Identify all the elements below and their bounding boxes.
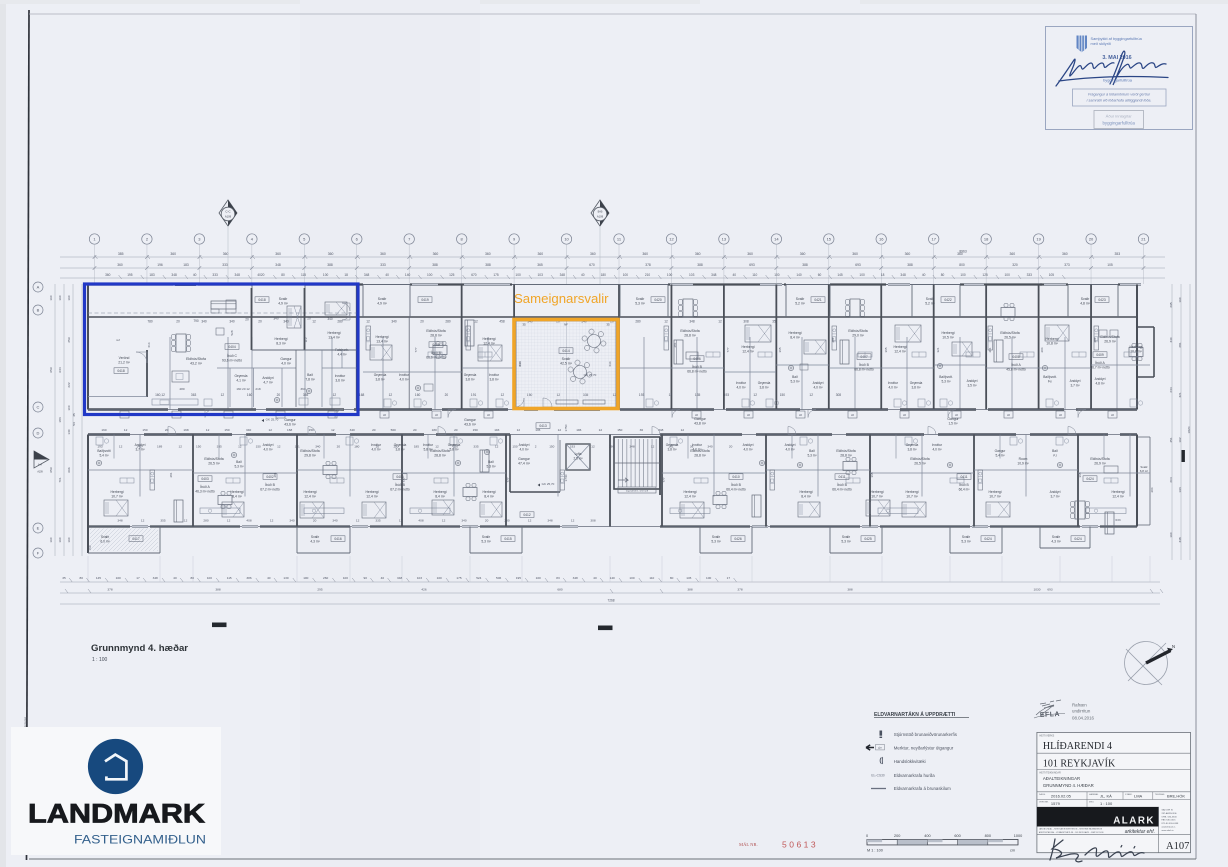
- svg-text:12: 12: [184, 519, 188, 523]
- svg-text:335: 335: [473, 445, 478, 449]
- svg-text:180: 180: [601, 273, 607, 277]
- svg-text:378: 378: [107, 588, 112, 592]
- svg-text:0413: 0413: [539, 424, 547, 428]
- svg-text:193: 193: [570, 445, 575, 449]
- svg-text:3,8 m²: 3,8 m²: [395, 448, 404, 452]
- svg-text:0425: 0425: [864, 537, 872, 541]
- svg-text:Herbergi: Herbergi: [893, 345, 906, 349]
- svg-text:348: 348: [275, 263, 281, 267]
- svg-text:5,3 m²: 5,3 m²: [481, 540, 491, 544]
- svg-text:8,4 m²: 8,4 m²: [790, 336, 800, 340]
- svg-text:EI₂-CS30: EI₂-CS30: [871, 774, 885, 778]
- svg-text:0424: 0424: [1074, 537, 1082, 541]
- svg-text:LR: LR: [799, 414, 802, 417]
- svg-text:20: 20: [245, 318, 249, 322]
- svg-text:3,5 m²: 3,5 m²: [967, 384, 976, 388]
- svg-text:388: 388: [485, 263, 491, 267]
- svg-text:5,3 m²: 5,3 m²: [790, 380, 799, 384]
- svg-text:42,5 m²: 42,5 m²: [560, 362, 573, 366]
- svg-text:360: 360: [433, 252, 439, 256]
- svg-text:4,1 m²: 4,1 m²: [236, 379, 246, 383]
- svg-text:560: 560: [391, 428, 396, 432]
- svg-text:193: 193: [639, 393, 645, 397]
- svg-text:800: 800: [959, 263, 965, 267]
- svg-text:C: C: [37, 405, 40, 410]
- svg-text:FAX 530-5515: FAX 530-5515: [1162, 819, 1177, 822]
- svg-text:byggingarfulltrúa: byggingarfulltrúa: [1103, 78, 1133, 83]
- svg-text:Bað: Bað: [307, 372, 313, 377]
- svg-text:360: 360: [328, 252, 334, 256]
- svg-text:5,3 m²: 5,3 m²: [486, 465, 495, 469]
- svg-text:12,4 m²: 12,4 m²: [366, 495, 378, 499]
- svg-text:GRUNNMYND 4. HÆÐAR: GRUNNMYND 4. HÆÐAR: [1043, 783, 1094, 788]
- svg-text:35: 35: [62, 576, 66, 580]
- svg-text:4,7 m²: 4,7 m²: [263, 381, 273, 385]
- svg-text:5,3 m²: 5,3 m²: [941, 380, 950, 384]
- svg-text:Gangur: Gangur: [518, 457, 531, 461]
- svg-text:5,3 m²: 5,3 m²: [635, 302, 645, 306]
- svg-text:12: 12: [277, 445, 281, 449]
- svg-text:20: 20: [258, 320, 262, 324]
- svg-text:701: 701: [58, 477, 62, 482]
- svg-text:8,4 m²: 8,4 m²: [232, 495, 242, 499]
- svg-text:LMA: LMA: [1134, 793, 1143, 798]
- svg-text:Herbergi: Herbergi: [741, 345, 754, 349]
- svg-text:A109: A109: [225, 214, 232, 218]
- svg-text:ALARK: ALARK: [1113, 816, 1155, 827]
- svg-text:JL, KÁ: JL, KÁ: [1100, 793, 1112, 798]
- svg-text:Svalir: Svalir: [311, 535, 320, 539]
- svg-text:3,6 m²: 3,6 m²: [335, 379, 345, 383]
- svg-text:STAÐF.: STAÐF.: [1125, 793, 1133, 796]
- svg-text:130: 130: [67, 429, 71, 434]
- svg-text:26,9 m²: 26,9 m²: [1104, 340, 1116, 344]
- svg-text:160: 160: [67, 537, 71, 542]
- svg-text:100: 100: [437, 576, 442, 580]
- svg-text:281: 281: [673, 342, 677, 347]
- svg-text:Herbergi: Herbergi: [1045, 337, 1058, 341]
- svg-text:12,4 m²: 12,4 m²: [742, 350, 754, 354]
- svg-text:N: N: [1172, 644, 1175, 649]
- svg-text:Eldhús/Stofa: Eldhús/Stofa: [430, 449, 449, 453]
- svg-text:0400: 0400: [396, 475, 404, 479]
- svg-text:Herbergi: Herbergi: [375, 335, 388, 339]
- svg-text:100: 100: [859, 273, 865, 277]
- svg-text:333: 333: [222, 263, 228, 267]
- svg-text:348: 348: [573, 576, 578, 580]
- svg-text:348: 348: [235, 273, 241, 277]
- svg-text:0417: 0417: [132, 537, 140, 541]
- svg-text:0409: 0409: [1096, 353, 1104, 357]
- svg-text:17: 17: [931, 237, 936, 242]
- svg-text:365: 365: [1078, 472, 1082, 477]
- svg-text:Anddyri: Anddyri: [743, 443, 754, 447]
- svg-text:386: 386: [246, 576, 251, 580]
- svg-text:191: 191: [471, 393, 477, 397]
- svg-text:12: 12: [270, 519, 274, 523]
- svg-text:340: 340: [289, 519, 294, 523]
- svg-text:LR: LR: [747, 414, 750, 417]
- svg-text:145: 145: [686, 576, 691, 580]
- svg-text:Geymsla: Geymsla: [448, 443, 461, 447]
- svg-text:135: 135: [695, 393, 701, 397]
- svg-text:B-B: B-B: [598, 210, 603, 214]
- svg-text:Íbúð B: Íbúð B: [265, 482, 276, 487]
- svg-text:373: 373: [1064, 263, 1070, 267]
- svg-text:Geymsla: Geymsla: [910, 381, 923, 385]
- svg-text:4,0 m²: 4,0 m²: [888, 386, 897, 390]
- svg-text:12: 12: [474, 320, 478, 324]
- svg-text:12: 12: [599, 428, 603, 432]
- svg-text:353: 353: [1114, 252, 1120, 256]
- svg-text:780: 780: [147, 320, 153, 324]
- svg-text:80: 80: [670, 576, 674, 580]
- svg-text:140: 140: [405, 273, 411, 277]
- svg-text:26,5 m²: 26,5 m²: [208, 462, 220, 466]
- svg-text:12: 12: [119, 445, 123, 449]
- svg-text:Þv.: Þv.: [1048, 380, 1052, 384]
- svg-text:1750: 1750: [564, 424, 568, 431]
- svg-text:4,0 m²: 4,0 m²: [263, 448, 272, 452]
- svg-text:LR: LR: [903, 414, 906, 417]
- svg-text:HLÍÐARENDI 4: HLÍÐARENDI 4: [1043, 740, 1112, 752]
- svg-text:130: 130: [283, 576, 288, 580]
- svg-text:AÐALTEIKNINGAR: AÐALTEIKNINGAR: [1043, 776, 1080, 781]
- svg-text:360: 360: [905, 252, 911, 256]
- svg-text:100: 100: [515, 273, 521, 277]
- svg-text:50613: 50613: [782, 840, 818, 850]
- svg-text:BRE,HÖK: BRE,HÖK: [1167, 793, 1185, 798]
- svg-text:150: 150: [256, 445, 261, 449]
- svg-text:524: 524: [476, 576, 481, 580]
- svg-text:0424: 0424: [984, 537, 992, 541]
- svg-text:185: 185: [414, 445, 419, 449]
- svg-text:15: 15: [827, 237, 832, 242]
- svg-text:B: B: [37, 308, 40, 313]
- svg-text:168: 168: [183, 428, 188, 432]
- svg-text:12,4 m²: 12,4 m²: [1112, 495, 1124, 499]
- svg-text:175: 175: [456, 576, 461, 580]
- svg-text:12: 12: [178, 445, 182, 449]
- svg-text:100: 100: [536, 576, 541, 580]
- svg-text:Geymsla: Geymsla: [374, 373, 387, 377]
- svg-text:4,0 m²: 4,0 m²: [743, 448, 752, 452]
- svg-text:12: 12: [718, 320, 722, 324]
- svg-text:TEIKNAÐ: TEIKNAÐ: [1155, 793, 1165, 796]
- svg-text:66,4 m²: 66,4 m²: [959, 488, 970, 492]
- svg-text:168: 168: [359, 393, 365, 397]
- svg-text:Bað: Bað: [809, 448, 815, 453]
- svg-text:12: 12: [141, 519, 145, 523]
- svg-text:0420: 0420: [654, 298, 662, 302]
- svg-text:0411: 0411: [838, 475, 845, 479]
- svg-text:ELDVARNARTÁKN Á UPPDRÆTTI: ELDVARNARTÁKN Á UPPDRÆTTI: [874, 711, 956, 718]
- svg-text:218: 218: [255, 387, 260, 391]
- svg-text:790: 790: [193, 319, 199, 323]
- svg-text:360: 360: [747, 252, 753, 256]
- svg-text:659: 659: [49, 367, 53, 372]
- svg-text:105: 105: [1107, 263, 1113, 267]
- svg-text:3,8 m²: 3,8 m²: [465, 378, 474, 382]
- svg-text:115: 115: [301, 273, 306, 277]
- svg-text:arkitektar ehf.: arkitektar ehf.: [1125, 829, 1155, 835]
- svg-text:12: 12: [399, 519, 403, 523]
- svg-text:10,8 m²: 10,8 m²: [1130, 350, 1142, 354]
- svg-text:VERKNR.: VERKNR.: [1039, 801, 1049, 803]
- svg-text:3,8 m²: 3,8 m²: [375, 378, 384, 382]
- svg-text:20: 20: [1089, 237, 1094, 242]
- svg-text:0421: 0421: [814, 298, 822, 302]
- svg-text:43,6 m²: 43,6 m²: [464, 423, 477, 427]
- svg-text:GK 25,70: GK 25,70: [266, 418, 279, 422]
- svg-text:Bað: Bað: [792, 374, 798, 379]
- svg-text:388: 388: [697, 263, 703, 267]
- svg-text:321: 321: [1178, 392, 1182, 397]
- svg-text:5,3 m²: 5,3 m²: [234, 465, 243, 469]
- svg-text:0423: 0423: [1098, 298, 1106, 302]
- svg-text:40: 40: [593, 576, 597, 580]
- svg-text:Eldvarnarkrafa á brunaskilum: Eldvarnarkrafa á brunaskilum: [894, 786, 951, 791]
- svg-text:340: 340: [332, 519, 337, 523]
- svg-text:4,0 m²: 4,0 m²: [736, 386, 745, 390]
- svg-text:3,8 m²: 3,8 m²: [907, 448, 916, 452]
- svg-text:20: 20: [454, 428, 458, 432]
- svg-text:Íbúð B: Íbúð B: [731, 482, 742, 487]
- svg-text:222: 222: [67, 382, 71, 387]
- svg-text:Íbúð C: Íbúð C: [227, 353, 238, 358]
- svg-text:10,8 m²: 10,8 m²: [1046, 342, 1058, 346]
- svg-text:160: 160: [1178, 297, 1182, 302]
- svg-text:365: 365: [537, 263, 543, 267]
- svg-text:28,8 m²: 28,8 m²: [430, 334, 442, 338]
- svg-text:365: 365: [778, 347, 782, 352]
- svg-text:103: 103: [689, 273, 695, 277]
- svg-text:Anddyri: Anddyri: [263, 443, 274, 447]
- svg-text:Þvottur: Þvottur: [335, 374, 346, 378]
- svg-text:280: 280: [203, 519, 208, 523]
- svg-text:160: 160: [58, 537, 62, 542]
- svg-text:348: 348: [689, 320, 695, 324]
- svg-text:Herbergi: Herbergi: [274, 337, 287, 341]
- svg-text:Svalir: Svalir: [636, 297, 645, 301]
- svg-text:M 1 : 100: M 1 : 100: [867, 849, 883, 853]
- svg-text:LR: LR: [1007, 414, 1010, 417]
- svg-text:600: 600: [954, 834, 960, 838]
- svg-text:3,7 m²: 3,7 m²: [1050, 495, 1059, 499]
- svg-text:180: 180: [432, 428, 437, 432]
- svg-text:160: 160: [67, 295, 71, 300]
- svg-text:LR: LR: [1059, 414, 1062, 417]
- svg-text:4,0 m²: 4,0 m²: [813, 386, 822, 390]
- svg-text:348: 348: [711, 273, 717, 277]
- svg-text:348: 348: [117, 519, 122, 523]
- svg-text:JAKOB LÍNDAL – KRISTJÁN EGGERT: JAKOB LÍNDAL – KRISTJÁN EGGERTSSON – KRI…: [1039, 828, 1103, 831]
- svg-text:12: 12: [517, 428, 521, 432]
- svg-text:100: 100: [1005, 273, 1011, 277]
- svg-text:Íbúð B: Íbúð B: [959, 482, 969, 487]
- svg-text:4,0 m²: 4,0 m²: [519, 448, 528, 452]
- svg-text:Herbergi: Herbergi: [905, 490, 918, 494]
- svg-text:ref: ref: [116, 338, 119, 342]
- svg-text:byggingarfulltrúa: byggingarfulltrúa: [1102, 121, 1135, 126]
- svg-text:4,8 m²: 4,8 m²: [1080, 302, 1090, 306]
- svg-text:320: 320: [1012, 263, 1018, 267]
- svg-text:388: 388: [687, 588, 692, 592]
- svg-text:659: 659: [49, 467, 53, 472]
- svg-text:348: 348: [900, 273, 906, 277]
- svg-text:360: 360: [852, 252, 858, 256]
- svg-text:HEITI VERKS: HEITI VERKS: [1039, 734, 1054, 737]
- svg-text:5,3 m²: 5,3 m²: [711, 540, 721, 544]
- svg-text:Þvottur: Þvottur: [371, 443, 382, 447]
- svg-text:67,2 m² nettó: 67,2 m² nettó: [260, 488, 280, 492]
- svg-text:Herbergi: Herbergi: [1111, 490, 1124, 494]
- svg-text:10,7 m²: 10,7 m²: [871, 495, 883, 499]
- svg-text:0416: 0416: [334, 537, 342, 541]
- svg-text:2,5 m²: 2,5 m²: [573, 457, 582, 461]
- svg-text:4,3 m²: 4,3 m²: [310, 540, 320, 544]
- svg-text:6,8 m²: 6,8 m²: [1140, 469, 1148, 473]
- svg-text:1 : 100: 1 : 100: [1100, 801, 1113, 806]
- svg-text:20: 20: [372, 428, 376, 432]
- svg-text:348: 348: [397, 576, 402, 580]
- svg-text:LANDMARK: LANDMARK: [28, 799, 206, 829]
- svg-text:ORB. 530-5500: ORB. 530-5500: [1162, 816, 1178, 818]
- svg-text:0422: 0422: [944, 298, 952, 302]
- svg-text:100: 100: [774, 273, 780, 277]
- svg-text:40: 40: [381, 576, 385, 580]
- svg-text:20: 20: [277, 393, 281, 397]
- svg-text:undirritun: undirritun: [1072, 709, 1091, 714]
- svg-text:365: 365: [884, 347, 888, 352]
- svg-text:1579: 1579: [1051, 801, 1061, 806]
- svg-text:Þvottur: Þvottur: [423, 443, 434, 447]
- svg-text:348: 348: [560, 273, 566, 277]
- svg-text:20: 20: [420, 320, 424, 324]
- svg-text:26,5 m²: 26,5 m²: [914, 462, 926, 466]
- svg-text:348: 348: [171, 273, 177, 277]
- svg-text:348: 348: [1178, 537, 1182, 542]
- svg-text:Anddyri: Anddyri: [1070, 379, 1081, 383]
- svg-text:0410: 0410: [732, 475, 740, 479]
- svg-text:360: 360: [1010, 252, 1016, 256]
- svg-text:458: 458: [499, 320, 505, 324]
- svg-text:Íbúð A: Íbúð A: [1095, 360, 1105, 365]
- svg-text:360: 360: [170, 252, 176, 256]
- svg-text:66,4 m² nettó: 66,4 m² nettó: [832, 488, 852, 492]
- svg-text:4020: 4020: [257, 273, 264, 277]
- svg-text:280: 280: [445, 320, 451, 324]
- svg-text:Herbergi: Herbergi: [870, 490, 883, 494]
- svg-text:17: 17: [136, 576, 140, 580]
- svg-text:145: 145: [96, 576, 101, 580]
- svg-text:8,4 m²: 8,4 m²: [484, 495, 494, 499]
- svg-text:7,8 m²: 7,8 m²: [305, 378, 315, 382]
- svg-text:66,8 m² nettó: 66,8 m² nettó: [854, 368, 874, 372]
- svg-text:Anddyri: Anddyri: [785, 443, 796, 447]
- svg-text:35: 35: [772, 320, 776, 324]
- svg-text:MKV.: MKV.: [1089, 801, 1095, 803]
- svg-text:12: 12: [356, 519, 360, 523]
- svg-text:634: 634: [58, 367, 62, 372]
- svg-text:10,9 m²: 10,9 m²: [1017, 462, 1029, 466]
- svg-text:Herbergi: Herbergi: [327, 331, 340, 335]
- svg-text:í samráði við lóðarhafa aðligg: í samráði við lóðarhafa aðliggjandi lóða…: [1087, 99, 1152, 103]
- svg-text:634: 634: [518, 361, 522, 366]
- svg-text:287-ARPHOFÐ: 287-ARPHOFÐ: [1162, 812, 1177, 815]
- svg-text:46,3 m² nettó: 46,3 m² nettó: [195, 490, 215, 494]
- svg-text:12: 12: [651, 445, 655, 449]
- svg-text:175: 175: [493, 273, 499, 277]
- svg-text:135: 135: [535, 428, 540, 432]
- svg-text:Íbúð B: Íbúð B: [859, 362, 870, 367]
- svg-text:80: 80: [281, 273, 285, 277]
- svg-text:Herbergi: Herbergi: [788, 331, 801, 335]
- svg-text:340: 340: [707, 445, 712, 449]
- svg-text:125: 125: [449, 273, 455, 277]
- svg-text:150: 150: [512, 445, 517, 449]
- svg-text:666: 666: [67, 467, 71, 472]
- svg-text:5,2 m²: 5,2 m²: [925, 302, 935, 306]
- svg-text:Herbergi: Herbergi: [988, 490, 1001, 494]
- svg-text:355: 355: [303, 393, 309, 397]
- svg-text:6,0 m²: 6,0 m²: [100, 540, 110, 544]
- svg-text:Svalir: Svalir: [482, 535, 491, 539]
- svg-text:196: 196: [157, 263, 163, 267]
- svg-text:195: 195: [516, 576, 521, 580]
- svg-text:183: 183: [58, 417, 62, 422]
- svg-text:140: 140: [610, 576, 615, 580]
- svg-text:150: 150: [142, 428, 147, 432]
- svg-text:NF: NF: [564, 323, 568, 327]
- svg-text:100: 100: [207, 576, 212, 580]
- svg-text:10: 10: [564, 237, 569, 242]
- svg-text:101 REYKJAVÍK: 101 REYKJAVÍK: [1043, 758, 1116, 770]
- svg-text:12: 12: [221, 393, 225, 397]
- svg-text:100: 100: [623, 273, 629, 277]
- svg-text:4,0 m²: 4,0 m²: [371, 448, 380, 452]
- svg-text:348: 348: [547, 519, 552, 523]
- svg-text:160: 160: [1169, 532, 1173, 537]
- svg-text:680: 680: [557, 588, 562, 592]
- svg-text:0403: 0403: [201, 477, 209, 481]
- svg-text:53: 53: [72, 422, 76, 426]
- svg-text:29,8 m²: 29,8 m²: [304, 454, 316, 458]
- svg-text:4,9 m²: 4,9 m²: [377, 302, 387, 306]
- svg-text:340: 340: [391, 320, 397, 324]
- svg-text:408: 408: [418, 519, 423, 523]
- svg-text:333: 333: [380, 263, 386, 267]
- svg-text:Anddyri: Anddyri: [135, 443, 146, 447]
- svg-text:12,4 m²: 12,4 m²: [304, 495, 316, 499]
- svg-text:113: 113: [304, 337, 308, 342]
- svg-text:Gangur: Gangur: [995, 449, 1007, 453]
- svg-text:40: 40: [267, 576, 271, 580]
- svg-text:3. MAI 2016: 3. MAI 2016: [1102, 55, 1131, 61]
- svg-text:150: 150: [549, 445, 554, 449]
- svg-text:20: 20: [485, 519, 489, 523]
- svg-text:35: 35: [522, 323, 526, 327]
- svg-text:Herbergi: Herbergi: [941, 331, 954, 335]
- svg-text:LR: LR: [383, 414, 386, 417]
- svg-text:Herbergi: Herbergi: [230, 490, 243, 494]
- svg-text:204: 204: [1169, 477, 1173, 482]
- svg-text:19: 19: [1036, 237, 1041, 242]
- svg-text:4,0 m²: 4,0 m²: [281, 362, 291, 366]
- svg-text:Herbergi: Herbergi: [482, 490, 495, 494]
- svg-text:4,8 m²: 4,8 m²: [1095, 382, 1104, 386]
- svg-text:Sameignarsvalir: Sameignarsvalir: [514, 291, 609, 306]
